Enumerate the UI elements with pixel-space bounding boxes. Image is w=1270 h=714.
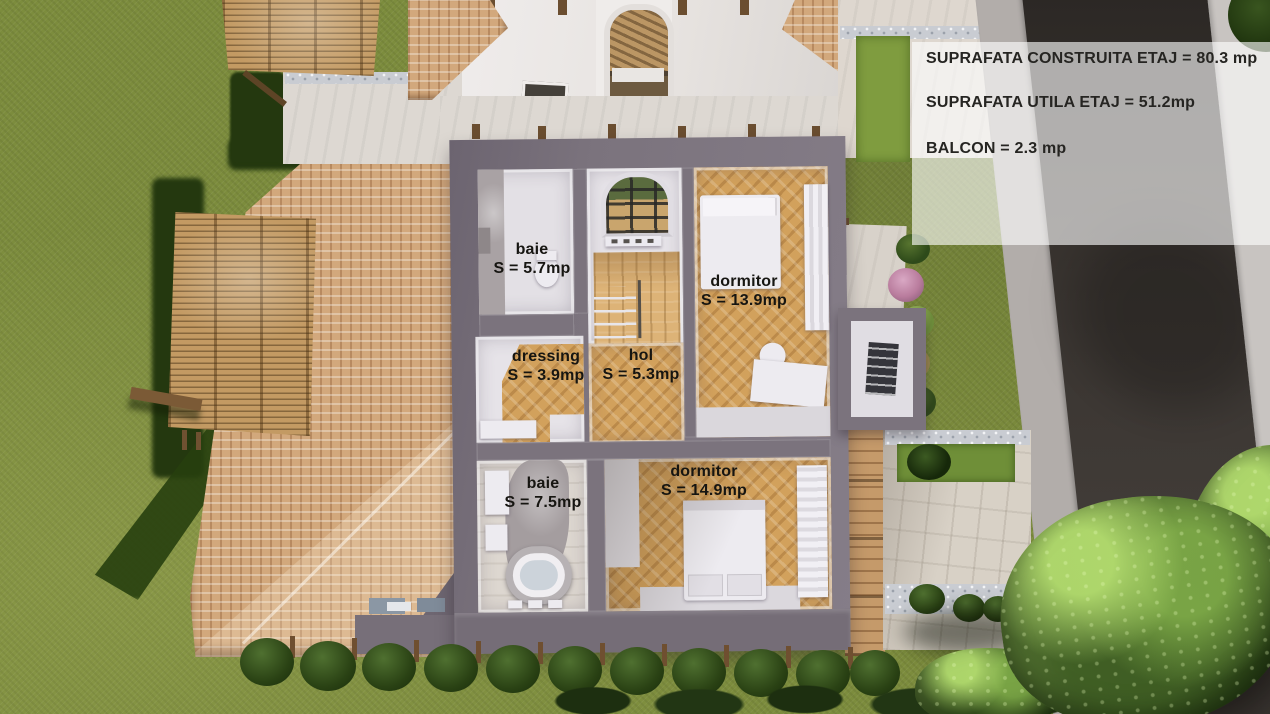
floor-white-band	[696, 406, 830, 437]
room-name: baie	[483, 474, 603, 493]
parapet-stub	[678, 0, 687, 15]
house-facade-top	[462, 0, 840, 98]
hedge-bush	[424, 644, 478, 692]
bed-pillows	[703, 198, 777, 217]
label-room-hol: hol S = 5.3mp	[581, 346, 701, 384]
floor-plan-etaj	[449, 136, 850, 654]
info-line-balcon: BALCON = 2.3 mp	[926, 140, 1066, 158]
terrace-stub	[608, 124, 616, 139]
desk	[750, 359, 828, 408]
fence-post	[786, 646, 791, 668]
facade-arch-niche	[596, 0, 672, 98]
parapet-stub	[558, 0, 567, 15]
bathtub-basin	[520, 560, 558, 590]
washer	[485, 525, 507, 551]
patio-gravel-top	[885, 430, 1030, 445]
shower-slot	[548, 600, 562, 608]
fence-post	[414, 640, 419, 662]
patio-shrub-dark	[907, 444, 951, 480]
label-room-dormitor-2: dormitor S = 14.9mp	[644, 462, 764, 500]
shower-slot	[508, 600, 522, 608]
sill-slots	[611, 239, 655, 243]
stairwell	[587, 168, 684, 344]
info-line-suprafata-construita: SUPRAFATA CONSTRUITA ETAJ = 80.3 mp	[926, 50, 1257, 68]
hedge-bush	[486, 645, 540, 693]
wall-baie1-dressing	[479, 314, 574, 337]
hedge-bush	[300, 641, 356, 691]
ground-floor-furniture	[417, 598, 445, 612]
bathtub	[506, 546, 573, 605]
arch-landing	[612, 68, 664, 82]
room-name: baie	[472, 240, 592, 259]
balcony	[838, 308, 926, 430]
room-area: S = 7.5mp	[483, 493, 603, 512]
lawn-strip-top-right	[856, 36, 910, 162]
flower-shrub-pink	[888, 268, 924, 302]
shower-slot	[528, 600, 542, 608]
pergola-top-left	[222, 0, 380, 76]
hedge-bush	[362, 643, 416, 691]
fence-post	[724, 645, 729, 667]
room-area: S = 5.3mp	[581, 365, 701, 384]
label-room-baie-2: baie S = 7.5mp	[483, 474, 603, 512]
room-name: dormitor	[684, 272, 804, 291]
fence-post	[538, 642, 543, 664]
label-room-baie-1: baie S = 5.7mp	[472, 240, 592, 278]
fence-post	[600, 643, 605, 665]
terrace-stub	[472, 124, 480, 139]
parapet-stub	[740, 0, 749, 15]
stair-shade	[594, 252, 681, 344]
patio-bush	[909, 584, 945, 614]
lower-floor-sliver	[355, 552, 467, 654]
arch-wood-beams	[610, 10, 668, 71]
room-area: S = 14.9mp	[644, 481, 764, 500]
room-area: S = 13.9mp	[684, 291, 804, 310]
balcony-radiator	[865, 342, 899, 396]
ground-floor-table	[387, 602, 411, 611]
label-room-dormitor-1: dormitor S = 13.9mp	[684, 272, 804, 310]
arch-opening	[604, 4, 674, 104]
fence-post	[662, 644, 667, 666]
arched-window	[601, 172, 674, 238]
info-line-suprafata-utila: SUPRAFATA UTILA ETAJ = 51.2mp	[926, 94, 1195, 112]
scene-3d-floorplan-render: SUPRAFATA CONSTRUITA ETAJ = 80.3 mp SUPR…	[0, 0, 1270, 714]
pergola-left-leg	[196, 432, 201, 450]
info-panel: SUPRAFATA CONSTRUITA ETAJ = 80.3 mp SUPR…	[912, 42, 1270, 245]
pergola-left-leg	[182, 430, 187, 450]
fence-post	[476, 641, 481, 663]
stairs-landing	[594, 252, 681, 344]
room-name: dormitor	[644, 462, 764, 481]
patio-tile-path	[845, 428, 885, 656]
hedge-bush	[240, 638, 294, 686]
room-name: hol	[581, 346, 701, 365]
room-area: S = 5.7mp	[472, 259, 592, 278]
wardrobe	[804, 184, 830, 330]
closet-shelf	[480, 420, 536, 439]
